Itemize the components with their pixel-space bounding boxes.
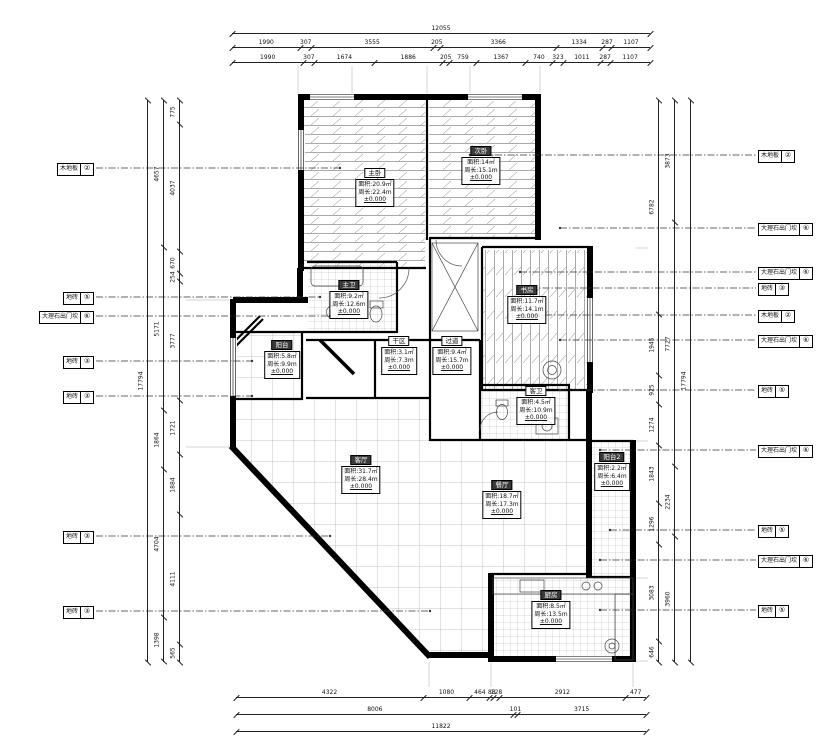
material-label-right-10: 大理石出门坎⑥ xyxy=(758,555,813,568)
room-name: 阳台 xyxy=(271,340,292,350)
material-number: ⑥ xyxy=(800,446,812,457)
room-name: 厨房 xyxy=(540,590,561,600)
material-label-left-4: 地砖③ xyxy=(63,356,94,369)
room-perimeter: 周长:17.3m xyxy=(485,501,518,509)
material-number: ③ xyxy=(81,532,93,543)
room-level: ±0.000 xyxy=(332,308,365,316)
room-name: 主卧 xyxy=(364,168,385,178)
dim-chain-bottom-inner: 43221080464881282912477 xyxy=(236,688,646,702)
material-text: 大理石出门坎 xyxy=(759,446,800,457)
room-area: 面积:4.5㎡ xyxy=(519,399,552,407)
material-number: ② xyxy=(782,151,794,162)
room-label-kitchen: 厨房 面积:8.5㎡周长:13.5m±0.000 xyxy=(531,590,570,629)
floor-plan-canvas: 12055 19903073555205336613342871107 1990… xyxy=(0,0,840,753)
dim-chain-bottom-mid: 80061013715 xyxy=(236,705,646,719)
room-perimeter: 周长:12.6m xyxy=(332,301,365,309)
material-text: 大理石出门坎 xyxy=(759,268,800,279)
material-number: ② xyxy=(81,164,93,175)
room-level: ±0.000 xyxy=(534,618,567,626)
material-text: 大理石出门坎 xyxy=(759,556,800,567)
material-number: ③ xyxy=(81,607,93,618)
room-label-hallway: 过道 面积:9.4㎡周长:15.7m±0.000 xyxy=(432,336,471,375)
material-number: ⑤ xyxy=(776,386,788,397)
material-label-left-7: 地砖③ xyxy=(63,606,94,619)
dim-chain-left-inner: 77540376702543777172118844111565 xyxy=(170,100,184,662)
room-label-master-bedroom: 主卧 面积:20.9㎡周长:22.4m±0.000 xyxy=(355,168,394,207)
room-area: 面积:5.8㎡ xyxy=(267,353,297,361)
material-text: 木地板 xyxy=(759,151,782,162)
dim-chain-left-outer: 46575171186447041398 xyxy=(154,100,168,662)
room-label-balcony: 阳台 面积:5.8㎡周长:9.9m±0.000 xyxy=(264,340,300,379)
room-name: 过道 xyxy=(441,336,462,346)
room-label-second-bedroom: 次卧 面积:14㎡周长:15.1m±0.000 xyxy=(461,146,500,185)
material-number: ③ xyxy=(81,357,93,368)
room-label-study: 书房 面积:11.7㎡周长:14.1m±0.000 xyxy=(507,285,546,324)
material-number: ③ xyxy=(81,392,93,403)
plan-drawing xyxy=(0,0,840,753)
room-level: ±0.000 xyxy=(519,414,552,422)
material-text: 木地板 xyxy=(759,311,782,322)
room-level: ±0.000 xyxy=(597,480,627,488)
room-name: 阳台2 xyxy=(599,452,624,462)
room-name: 主卫 xyxy=(338,280,359,290)
room-label-living-room: 客厅 面积:31.7㎡周长:28.4m±0.000 xyxy=(341,455,380,494)
dim-chain-top-inner: 1990307167418862057591367740323101128711… xyxy=(232,53,650,67)
dim-chain-top-total: 12055 xyxy=(232,24,650,38)
room-area: 面积:11.7㎡ xyxy=(510,298,543,306)
material-label-right-4: 地砖③ xyxy=(758,283,789,296)
room-area: 面积:9.4㎡ xyxy=(435,349,468,357)
material-number: ⑥ xyxy=(800,224,812,235)
material-text: 地砖 xyxy=(759,526,776,537)
material-label-right-7: 地砖⑤ xyxy=(758,385,789,398)
material-label-left-1: 木地板② xyxy=(57,163,94,176)
material-label-right-5: 木地板② xyxy=(758,310,795,323)
room-area: 面积:3.1㎡ xyxy=(384,349,414,357)
material-text: 大理石出门坎 xyxy=(40,312,81,323)
room-area: 面积:14㎡ xyxy=(464,159,497,167)
room-label-dining-room: 餐厅 面积:18.7㎡周长:17.3m±0.000 xyxy=(482,480,521,519)
material-label-left-2: 地砖⑤ xyxy=(63,292,94,305)
material-text: 地砖 xyxy=(64,357,81,368)
room-perimeter: 周长:10.9m xyxy=(519,407,552,415)
material-number: ③ xyxy=(776,284,788,295)
room-perimeter: 周长:9.9m xyxy=(267,361,297,369)
material-label-right-3: 大理石出门坎⑥ xyxy=(758,267,813,280)
dim-chain-right-inner: 678219459251274184312963083646 xyxy=(649,100,663,662)
room-area: 面积:2.2㎡ xyxy=(597,465,627,473)
room-area: 面积:20.9㎡ xyxy=(358,181,391,189)
room-label-guest-bath: 客卫 面积:4.5㎡周长:10.9m±0.000 xyxy=(516,386,555,425)
material-label-right-2: 大理石出门坎⑥ xyxy=(758,223,813,236)
material-label-left-6: 地砖③ xyxy=(63,531,94,544)
material-number: ⑤ xyxy=(776,606,788,617)
room-perimeter: 周长:13.5m xyxy=(534,611,567,619)
material-text: 大理石出门坎 xyxy=(759,336,800,347)
dim-chain-left-total: 17794 xyxy=(138,100,152,662)
dim-chain-bottom-total: 11822 xyxy=(236,722,646,736)
room-perimeter: 周长:15.1m xyxy=(464,167,497,175)
material-label-right-8: 大理石出门坎⑥ xyxy=(758,445,813,458)
room-level: ±0.000 xyxy=(510,313,543,321)
room-level: ±0.000 xyxy=(358,196,391,204)
material-text: 木地板 xyxy=(58,164,81,175)
material-text: 地砖 xyxy=(64,607,81,618)
room-level: ±0.000 xyxy=(485,508,518,516)
room-name: 书房 xyxy=(516,285,537,295)
room-level: ±0.000 xyxy=(267,368,297,376)
room-level: ±0.000 xyxy=(464,174,497,182)
room-level: ±0.000 xyxy=(344,483,377,491)
room-area: 面积:31.7㎡ xyxy=(344,468,377,476)
material-number: ⑥ xyxy=(800,268,812,279)
room-perimeter: 周长:6.4m xyxy=(597,473,627,481)
material-label-right-11: 地砖⑤ xyxy=(758,605,789,618)
material-number: ⑥ xyxy=(800,336,812,347)
material-text: 地砖 xyxy=(64,293,81,304)
material-number: ⑥ xyxy=(800,556,812,567)
dim-chain-right-total: 17794 xyxy=(681,100,695,662)
room-perimeter: 周长:15.7m xyxy=(435,357,468,365)
room-perimeter: 周长:22.4m xyxy=(358,189,391,197)
dim-chain-right-outer: 3873772722343960 xyxy=(665,100,679,662)
room-name: 次卧 xyxy=(470,146,491,156)
material-text: 地砖 xyxy=(64,392,81,403)
room-name: 餐厅 xyxy=(491,480,512,490)
material-number: ⑥ xyxy=(81,312,93,323)
material-label-left-5: 地砖③ xyxy=(63,391,94,404)
material-text: 地砖 xyxy=(759,284,776,295)
material-text: 地砖 xyxy=(64,532,81,543)
room-area: 面积:8.5㎡ xyxy=(534,603,567,611)
material-label-left-3: 大理石出门坎⑥ xyxy=(39,311,94,324)
material-label-right-1: 木地板② xyxy=(758,150,795,163)
room-name: 客卫 xyxy=(525,386,546,396)
material-number: ② xyxy=(782,311,794,322)
material-text: 地砖 xyxy=(759,606,776,617)
room-label-master-bath: 主卫 面积:9.2㎡周长:12.6m±0.000 xyxy=(329,280,368,319)
room-name: 干区 xyxy=(388,336,409,346)
room-perimeter: 周长:7.3m xyxy=(384,357,414,365)
dim-chain-top-mid: 19903073555205336613342871107 xyxy=(232,38,650,52)
room-level: ±0.000 xyxy=(435,364,468,372)
room-perimeter: 周长:14.1m xyxy=(510,306,543,314)
material-label-right-6: 大理石出门坎⑥ xyxy=(758,335,813,348)
material-label-right-9: 地砖⑤ xyxy=(758,525,789,538)
room-label-balcony-2: 阳台2 面积:2.2㎡周长:6.4m±0.000 xyxy=(594,452,630,491)
floor-hatches xyxy=(232,97,633,660)
material-text: 大理石出门坎 xyxy=(759,224,800,235)
room-area: 面积:9.2㎡ xyxy=(332,293,365,301)
room-perimeter: 周长:28.4m xyxy=(344,476,377,484)
room-area: 面积:18.7㎡ xyxy=(485,493,518,501)
material-text: 地砖 xyxy=(759,386,776,397)
room-level: ±0.000 xyxy=(384,364,414,372)
room-name: 客厅 xyxy=(350,455,371,465)
material-number: ⑤ xyxy=(776,526,788,537)
room-label-dry-area: 干区 面积:3.1㎡周长:7.3m±0.000 xyxy=(381,336,417,375)
material-number: ⑤ xyxy=(81,293,93,304)
